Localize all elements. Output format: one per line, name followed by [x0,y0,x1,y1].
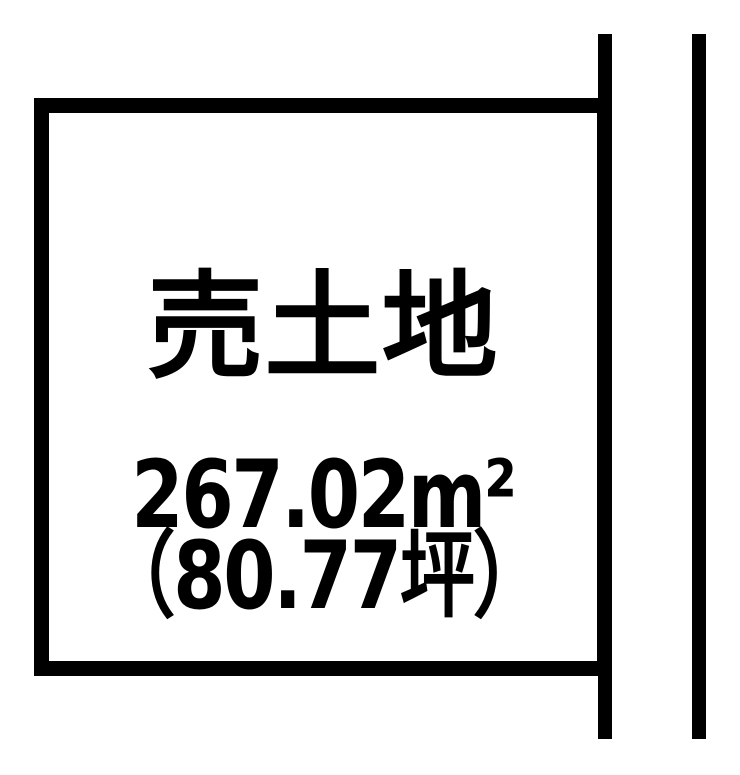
land-parcel-outline [34,98,612,676]
land-plot-diagram: 売土地 267.02m² （80.77坪） [0,0,740,775]
road-boundary-line-outer [692,34,706,739]
